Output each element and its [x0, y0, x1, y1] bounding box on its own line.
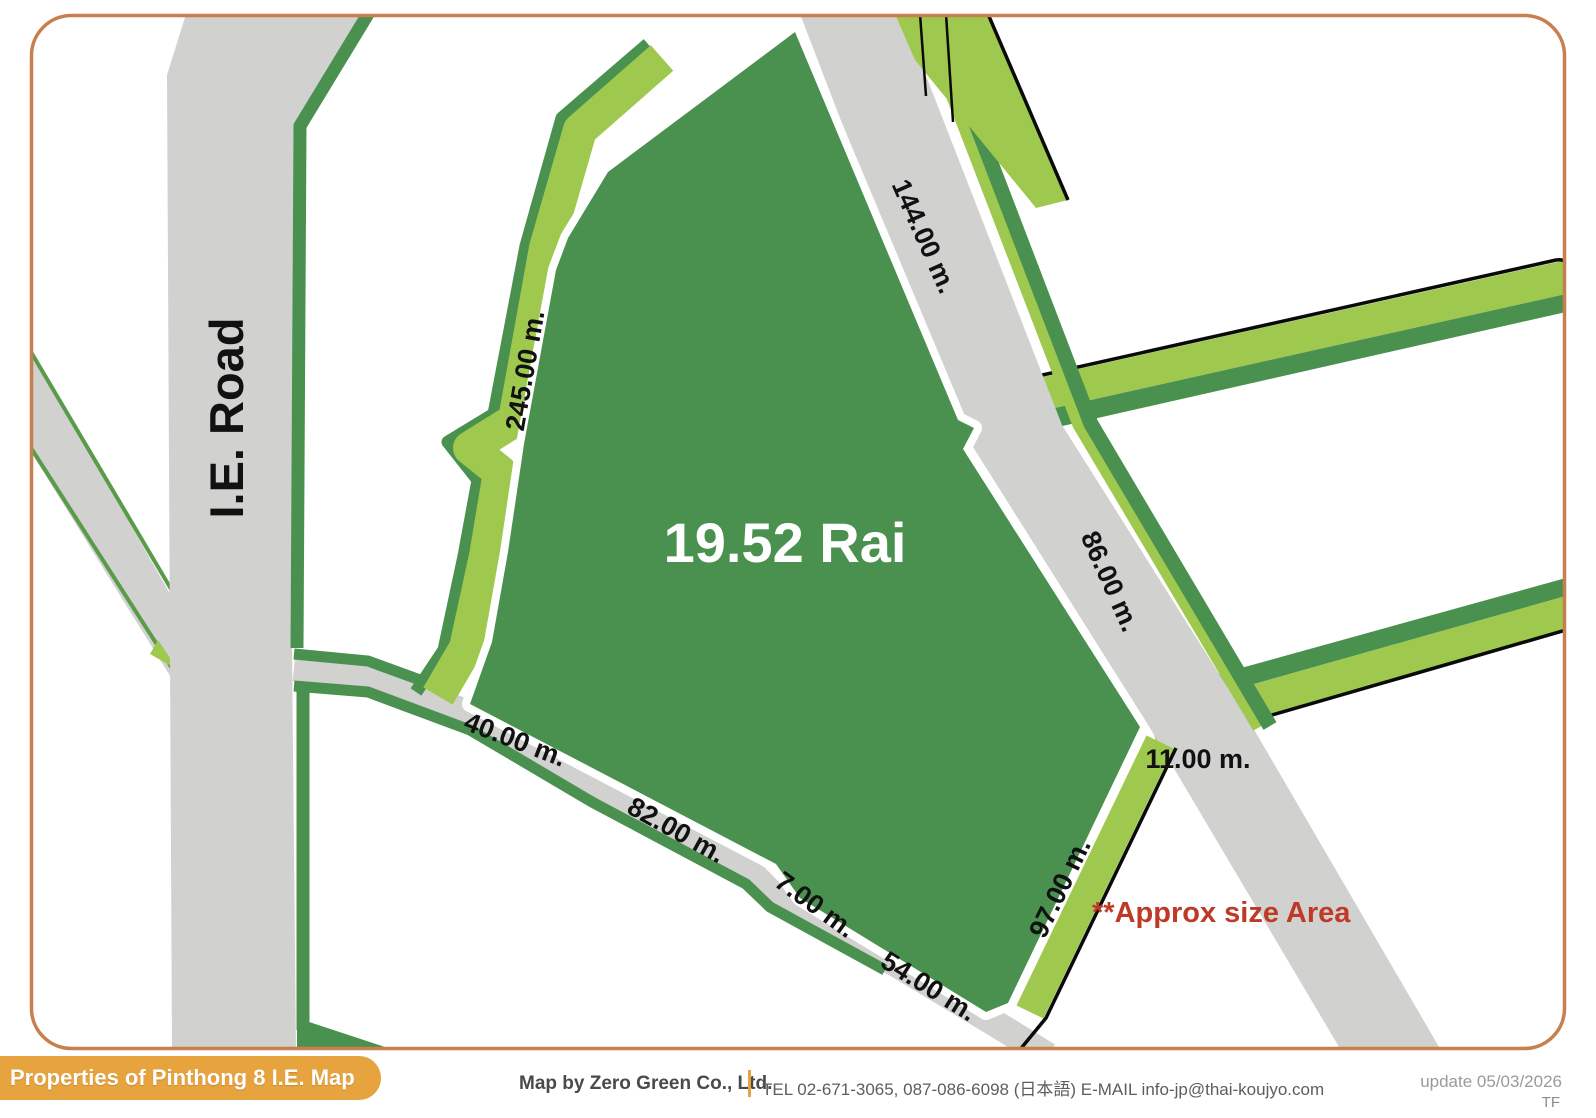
map-title-badge: Properties of Pinthong 8 I.E. Map — [0, 1056, 381, 1100]
footer-divider — [748, 1070, 751, 1097]
label-parcel-area: 19.52 Rai — [664, 511, 907, 574]
label-approx-note: **Approx size Area — [1092, 897, 1351, 929]
map-credit: Map by Zero Green Co., Ltd. — [519, 1073, 772, 1095]
contact-info: TEL 02-671-3065, 087-086-6098 (日本語) E-MA… — [762, 1075, 1324, 1100]
update-date: update 05/03/2026 — [1420, 1072, 1562, 1092]
property-map-page: I.E. Road 19.52 Rai 144.00 m. 86.00 m. 2… — [0, 0, 1596, 1118]
label-ie-road: I.E. Road — [200, 317, 253, 518]
label-11m: 11.00 m. — [1145, 744, 1250, 774]
map-title-text: Properties of Pinthong 8 I.E. Map — [10, 1065, 355, 1091]
author-initials: TF — [1542, 1094, 1560, 1111]
land-plot-map: I.E. Road 19.52 Rai 144.00 m. 86.00 m. 2… — [0, 0, 1596, 1118]
ie-road — [31, 14, 400, 1052]
